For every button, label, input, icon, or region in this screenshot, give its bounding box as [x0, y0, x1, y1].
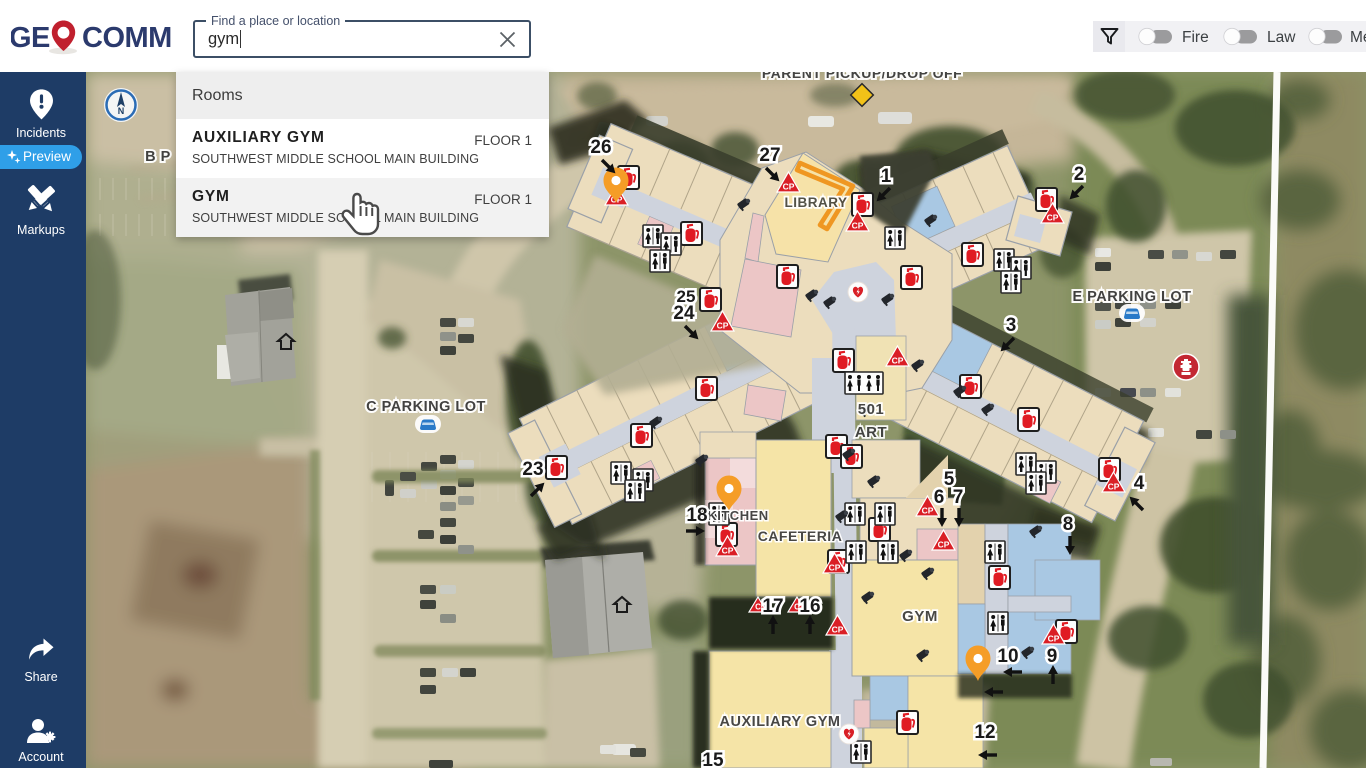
svg-text:4: 4: [1134, 473, 1145, 494]
svg-text:GE: GE: [11, 22, 50, 54]
svg-text:AUXILIARY GYM: AUXILIARY GYM: [720, 714, 841, 730]
svg-text:26: 26: [590, 137, 611, 158]
svg-text:PARENT PICKUP/DROP OFF: PARENT PICKUP/DROP OFF: [762, 72, 962, 81]
svg-text:7: 7: [953, 487, 964, 508]
svg-text:15: 15: [702, 750, 724, 768]
svg-text:12: 12: [974, 722, 995, 743]
svg-text:KITCHEN: KITCHEN: [707, 508, 768, 523]
svg-text:3: 3: [1006, 315, 1017, 336]
svg-text:501: 501: [858, 401, 885, 418]
svg-text:8: 8: [1063, 514, 1074, 535]
svg-text:COMM: COMM: [82, 22, 172, 54]
svg-text:18: 18: [686, 505, 707, 526]
svg-text:1: 1: [881, 166, 892, 187]
svg-text:N: N: [118, 106, 125, 116]
svg-text:9: 9: [1047, 646, 1058, 667]
svg-text:17: 17: [762, 596, 783, 617]
svg-text:C: C: [755, 603, 761, 612]
svg-text:GYM: GYM: [902, 608, 938, 625]
svg-text:Fire: Fire: [1182, 29, 1209, 46]
svg-text:23: 23: [522, 459, 543, 480]
svg-text:6: 6: [934, 487, 945, 508]
svg-text:27: 27: [759, 145, 780, 166]
svg-text:CAFETERIA: CAFETERIA: [758, 528, 843, 544]
svg-text:Me: Me: [1350, 29, 1366, 46]
svg-text:10: 10: [997, 646, 1018, 667]
svg-text:16: 16: [799, 596, 820, 617]
svg-text:B P: B P: [145, 149, 171, 165]
svg-text:LIBRARY: LIBRARY: [785, 195, 848, 210]
svg-text:2: 2: [1074, 164, 1085, 185]
svg-text:C PARKING LOT: C PARKING LOT: [366, 399, 486, 415]
svg-text:Law: Law: [1267, 29, 1296, 46]
svg-text:E PARKING LOT: E PARKING LOT: [1072, 289, 1191, 305]
svg-text:ART: ART: [855, 424, 887, 441]
svg-text:24: 24: [673, 303, 695, 324]
